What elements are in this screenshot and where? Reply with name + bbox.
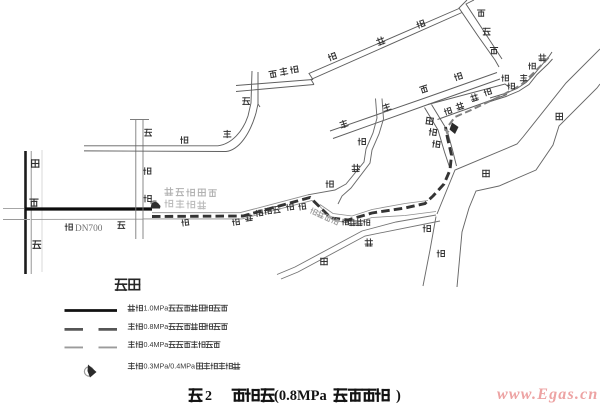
svg-text:(0.8MPa: (0.8MPa bbox=[274, 388, 327, 404]
svg-text:0.8MPa: 0.8MPa bbox=[144, 322, 169, 331]
svg-text:0.3MPa/0.4MPa: 0.3MPa/0.4MPa bbox=[144, 362, 196, 371]
svg-text:www.Egas.cn: www.Egas.cn bbox=[497, 386, 599, 403]
svg-text:): ) bbox=[396, 388, 401, 404]
svg-text:2: 2 bbox=[205, 389, 212, 404]
svg-text:DN700: DN700 bbox=[75, 224, 103, 234]
svg-text:1.0MPa: 1.0MPa bbox=[144, 304, 169, 313]
svg-text:0.4MPa: 0.4MPa bbox=[144, 340, 169, 349]
